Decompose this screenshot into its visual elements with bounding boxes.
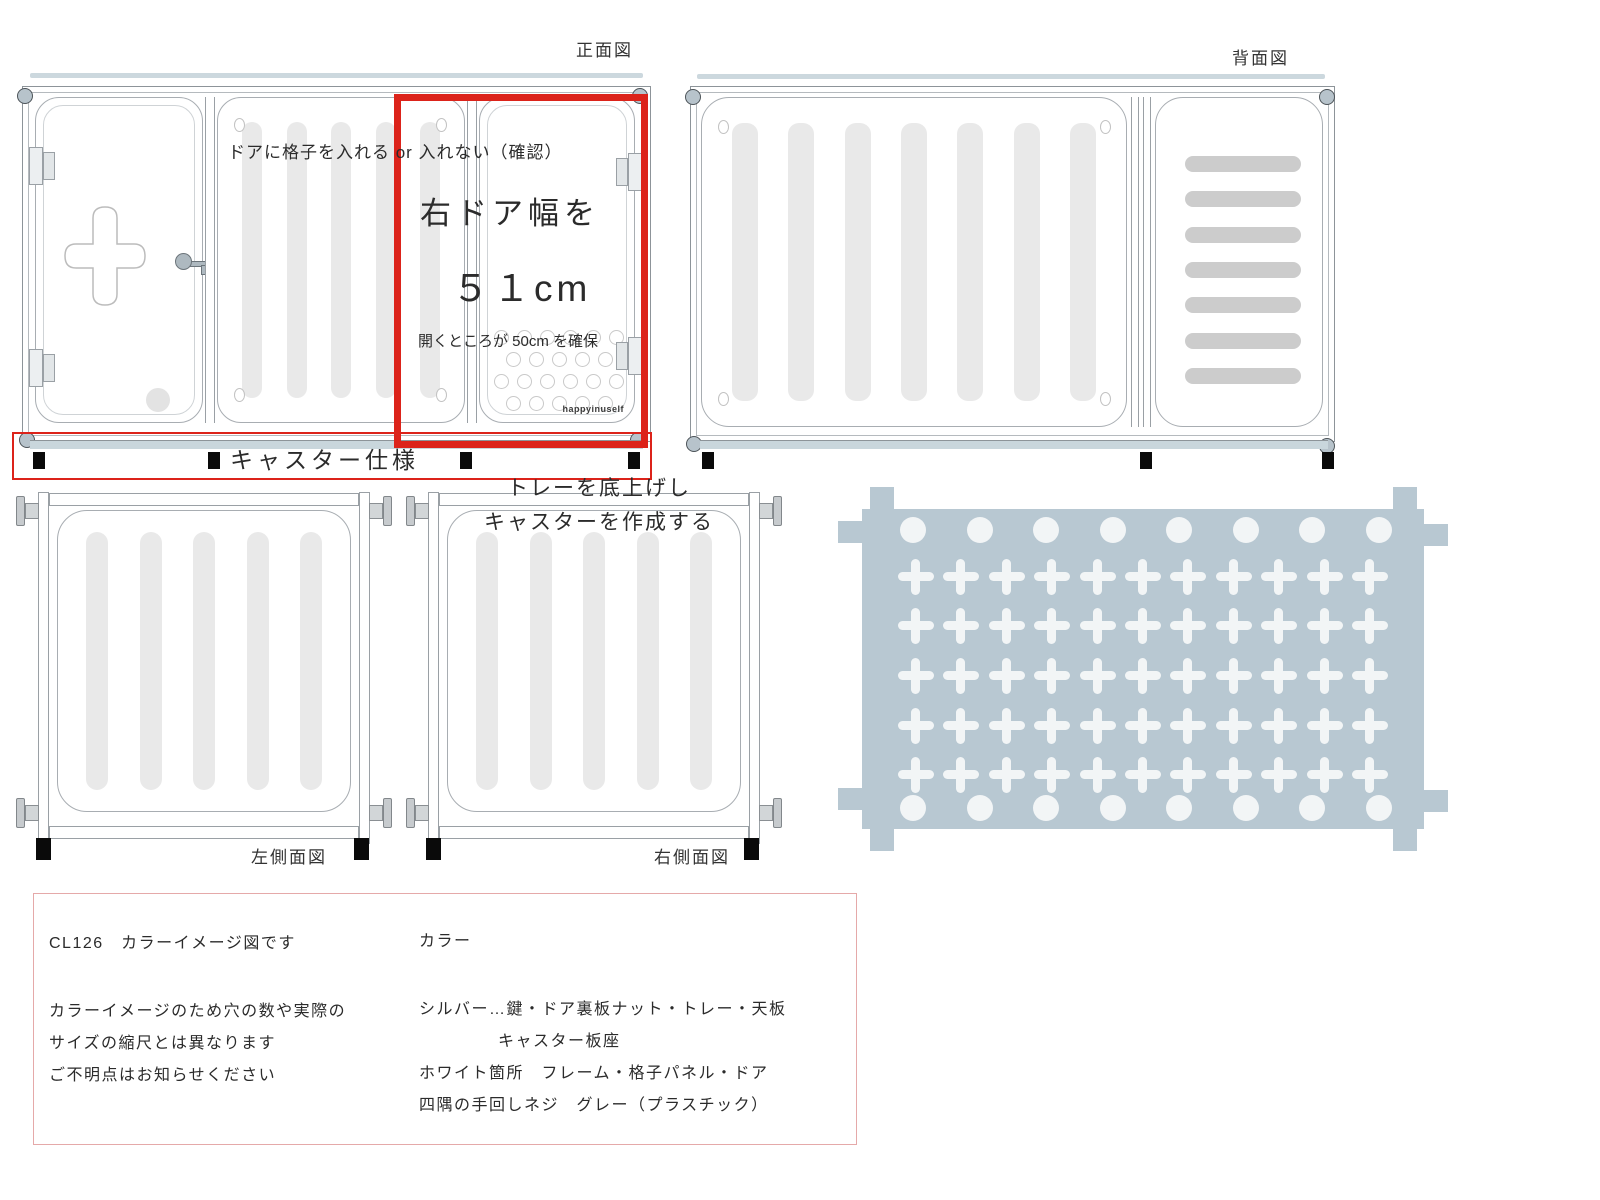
cross-cutout-hole — [1170, 708, 1206, 744]
door-lattice-note: ドアに格子を入れる or 入れない（確認） — [228, 138, 563, 163]
right-side-view — [406, 486, 782, 866]
cross-cutout-hole — [1307, 608, 1343, 644]
round-hole — [1299, 795, 1325, 821]
corner-screw-icon — [1319, 89, 1335, 105]
cross-cutout-hole — [1352, 658, 1388, 694]
vent-slot — [242, 122, 262, 398]
frame-bottom-rail — [49, 826, 359, 839]
cross-cutout-hole — [943, 708, 979, 744]
cross-cutout-hole — [1034, 608, 1070, 644]
vent-slot — [637, 532, 659, 790]
cross-cutout-hole — [1216, 757, 1252, 793]
back-side-panel — [1155, 97, 1323, 427]
cross-cutout-hole — [989, 708, 1025, 744]
cross-cutout-hole — [898, 658, 934, 694]
cross-cutout-hole — [1170, 559, 1206, 595]
vent-slot — [1014, 123, 1040, 401]
vent-slot — [287, 122, 307, 398]
right-door-width-note-line1: 右ドア幅を — [420, 188, 600, 233]
thumbscrew-icon — [406, 798, 430, 828]
frame-post — [749, 492, 760, 844]
screw-hole — [1100, 120, 1111, 134]
thumbscrew-icon — [758, 798, 782, 828]
cross-cutout-hole — [1216, 658, 1252, 694]
cross-cutout-hole — [1216, 608, 1252, 644]
door-gray-dot — [146, 388, 170, 412]
vent-slot — [788, 123, 814, 401]
round-hole — [1033, 795, 1059, 821]
front-top-board — [30, 73, 643, 78]
color-header: カラー — [419, 927, 472, 951]
cross-cutout-hole — [898, 559, 934, 595]
thumbscrew-icon — [16, 798, 40, 828]
cross-cutout-hole — [1125, 757, 1161, 793]
cross-cutout-hole — [989, 757, 1025, 793]
frame-post — [359, 492, 370, 844]
back-side-slats — [1182, 156, 1304, 384]
cross-cutout-hole — [943, 658, 979, 694]
cross-cutout-hole — [1034, 708, 1070, 744]
cross-cutout-hole — [989, 559, 1025, 595]
tray-cross-grid — [893, 552, 1393, 800]
right-side-view-label: 右側面図 — [654, 843, 730, 868]
tray-tab — [1424, 790, 1448, 812]
cross-cutout-hole — [1080, 658, 1116, 694]
caster-foot — [744, 838, 759, 860]
tray-tab — [1424, 524, 1448, 546]
caster-foot — [354, 838, 369, 860]
tray-tab — [1393, 487, 1417, 509]
color-gray-line: 四隅の手回しネジ グレー（プラスチック） — [419, 1091, 769, 1115]
vent-slot — [140, 532, 162, 790]
vent-slot — [376, 122, 396, 398]
round-hole — [900, 517, 926, 543]
round-hole — [1233, 517, 1259, 543]
tray-raise-note-line2: キャスターを作成する — [484, 506, 714, 536]
frame-bottom-rail — [439, 826, 749, 839]
vent-slat — [1185, 333, 1301, 349]
cross-cutout-hole — [1307, 708, 1343, 744]
cross-cutout-hole — [1261, 658, 1297, 694]
cross-cutout-hole — [943, 608, 979, 644]
thumbscrew-icon — [368, 496, 392, 526]
vent-slot — [247, 532, 269, 790]
color-silver-line2: キャスター板座 — [498, 1027, 621, 1051]
hinge-icon — [29, 147, 43, 185]
round-hole — [1166, 795, 1192, 821]
cross-cutout-hole — [1352, 559, 1388, 595]
tray-tab — [838, 521, 862, 543]
cross-cutout-hole — [1216, 708, 1252, 744]
caster-spec-note: キャスター仕様 — [230, 441, 419, 475]
left-side-view — [16, 486, 392, 866]
warning-line1: カラーイメージのため穴の数や実際の — [49, 997, 346, 1021]
front-view-label: 正面図 — [576, 36, 633, 61]
cross-cutout-hole — [943, 559, 979, 595]
round-hole — [1100, 517, 1126, 543]
color-image-diagram: 正面図 — [0, 0, 1600, 1200]
cross-cutout-hole — [1261, 757, 1297, 793]
color-white-line: ホワイト箇所 フレーム・格子パネル・ドア — [419, 1059, 769, 1083]
hinge-icon — [43, 152, 55, 180]
tray-tab — [870, 829, 894, 851]
frame-top-rail — [49, 493, 359, 506]
left-side-view-label: 左側面図 — [251, 843, 327, 868]
screw-hole — [1100, 392, 1111, 406]
vent-slat — [1185, 227, 1301, 243]
back-base-bar — [700, 440, 1328, 449]
vent-slot — [476, 532, 498, 790]
caster-foot — [426, 838, 441, 860]
cross-cutout-hole — [1261, 708, 1297, 744]
round-hole — [1366, 517, 1392, 543]
caster-foot — [702, 452, 714, 469]
cross-cutout-hole — [1307, 559, 1343, 595]
vent-slot — [1070, 123, 1096, 401]
vent-slot — [300, 532, 322, 790]
frame-post — [428, 492, 439, 844]
thumbscrew-icon — [406, 496, 430, 526]
info-box: CL126 カラーイメージ図です カラー カラーイメージのため穴の数や実際の サ… — [33, 893, 857, 1145]
lock-icon — [175, 253, 192, 270]
cross-cutout-hole — [1261, 608, 1297, 644]
round-hole — [1366, 795, 1392, 821]
cross-cutout-hole — [1307, 757, 1343, 793]
vent-slot — [583, 532, 605, 790]
hinge-icon — [43, 354, 55, 382]
contact-line: ご不明点はお知らせください — [49, 1061, 276, 1085]
thumbscrew-icon — [368, 798, 392, 828]
vent-slat — [1185, 262, 1301, 278]
caster-foot — [1140, 452, 1152, 469]
vent-slot — [957, 123, 983, 401]
tray-hole-row-bottom — [900, 795, 1392, 821]
back-top-board — [697, 74, 1325, 79]
vent-slot — [901, 123, 927, 401]
side-panel-slots — [86, 533, 322, 789]
cross-cutout-hole — [1261, 559, 1297, 595]
vent-slat — [1185, 156, 1301, 172]
corner-screw-icon — [17, 88, 33, 104]
tray-hole-row-top — [900, 517, 1392, 543]
screw-hole — [718, 120, 729, 134]
round-hole — [1166, 517, 1192, 543]
cross-cutout-hole — [1125, 608, 1161, 644]
cross-cutout-hole — [898, 757, 934, 793]
color-silver-line: シルバー…鍵・ドア裏板ナット・トレー・天板 — [419, 995, 787, 1019]
vent-slot — [331, 122, 351, 398]
back-divider-post — [1143, 97, 1151, 427]
right-door-width-note-line2: ５１cm — [452, 258, 591, 312]
tray-tab — [1393, 829, 1417, 851]
cross-cutout-hole — [1170, 608, 1206, 644]
cross-cutout-hole — [898, 608, 934, 644]
side-lattice-panel — [447, 510, 741, 812]
vent-slot — [845, 123, 871, 401]
front-divider-post — [205, 97, 215, 423]
cross-cutout-hole — [1352, 757, 1388, 793]
round-hole — [967, 795, 993, 821]
cross-cutout-hole — [1080, 708, 1116, 744]
cross-cutout-hole — [1170, 757, 1206, 793]
frame-post — [38, 492, 49, 844]
screw-hole — [234, 388, 245, 402]
back-main-panel — [701, 97, 1127, 427]
door-opening-note: 開くところが 50cm を確保 — [418, 330, 598, 351]
screw-hole — [234, 118, 245, 132]
vent-slot — [193, 532, 215, 790]
cross-cutout-hole — [1080, 608, 1116, 644]
round-hole — [1299, 517, 1325, 543]
round-hole — [900, 795, 926, 821]
thumbscrew-icon — [16, 496, 40, 526]
cross-cutout-hole — [1170, 658, 1206, 694]
cross-cutout-hole — [1080, 559, 1116, 595]
cross-cutout-hole — [1307, 658, 1343, 694]
vent-slot — [530, 532, 552, 790]
back-divider-post — [1131, 97, 1139, 427]
cross-cutout-hole — [989, 608, 1025, 644]
vent-slat — [1185, 191, 1301, 207]
round-hole — [1033, 517, 1059, 543]
cross-cutout-hole — [1352, 608, 1388, 644]
back-view-label: 背面図 — [1232, 44, 1289, 69]
back-view-frame — [690, 86, 1335, 442]
hinge-icon — [29, 349, 43, 387]
tray-tab — [870, 487, 894, 509]
cross-cutout-hole — [989, 658, 1025, 694]
tray-tab — [838, 788, 862, 810]
tray-raise-note-line1: トレーを底上げし — [507, 472, 691, 502]
vent-slot — [86, 532, 108, 790]
tray-top-view — [862, 509, 1424, 829]
model-line: CL126 カラーイメージ図です — [49, 929, 296, 953]
vent-slat — [1185, 297, 1301, 313]
cross-cutout-hole — [1125, 658, 1161, 694]
cross-cutout-hole — [1034, 757, 1070, 793]
back-panel-slots — [732, 124, 1096, 400]
screw-hole — [718, 392, 729, 406]
cross-cutout-icon — [64, 206, 146, 306]
cross-cutout-hole — [1125, 559, 1161, 595]
cross-cutout-hole — [1034, 658, 1070, 694]
cross-cutout-hole — [1216, 559, 1252, 595]
cross-cutout-hole — [1125, 708, 1161, 744]
warning-line2: サイズの縮尺とは異なります — [49, 1029, 276, 1053]
vent-slot — [732, 123, 758, 401]
side-panel-slots — [476, 533, 712, 789]
cross-cutout-hole — [1352, 708, 1388, 744]
round-hole — [967, 517, 993, 543]
round-hole — [1100, 795, 1126, 821]
caster-foot — [36, 838, 51, 860]
side-lattice-panel — [57, 510, 351, 812]
cross-cutout-hole — [1034, 559, 1070, 595]
corner-screw-icon — [685, 89, 701, 105]
vent-slot — [690, 532, 712, 790]
thumbscrew-icon — [758, 496, 782, 526]
cross-cutout-hole — [943, 757, 979, 793]
caster-foot — [1322, 452, 1334, 469]
vent-slat — [1185, 368, 1301, 384]
cross-cutout-hole — [898, 708, 934, 744]
round-hole — [1233, 795, 1259, 821]
cross-cutout-hole — [1080, 757, 1116, 793]
